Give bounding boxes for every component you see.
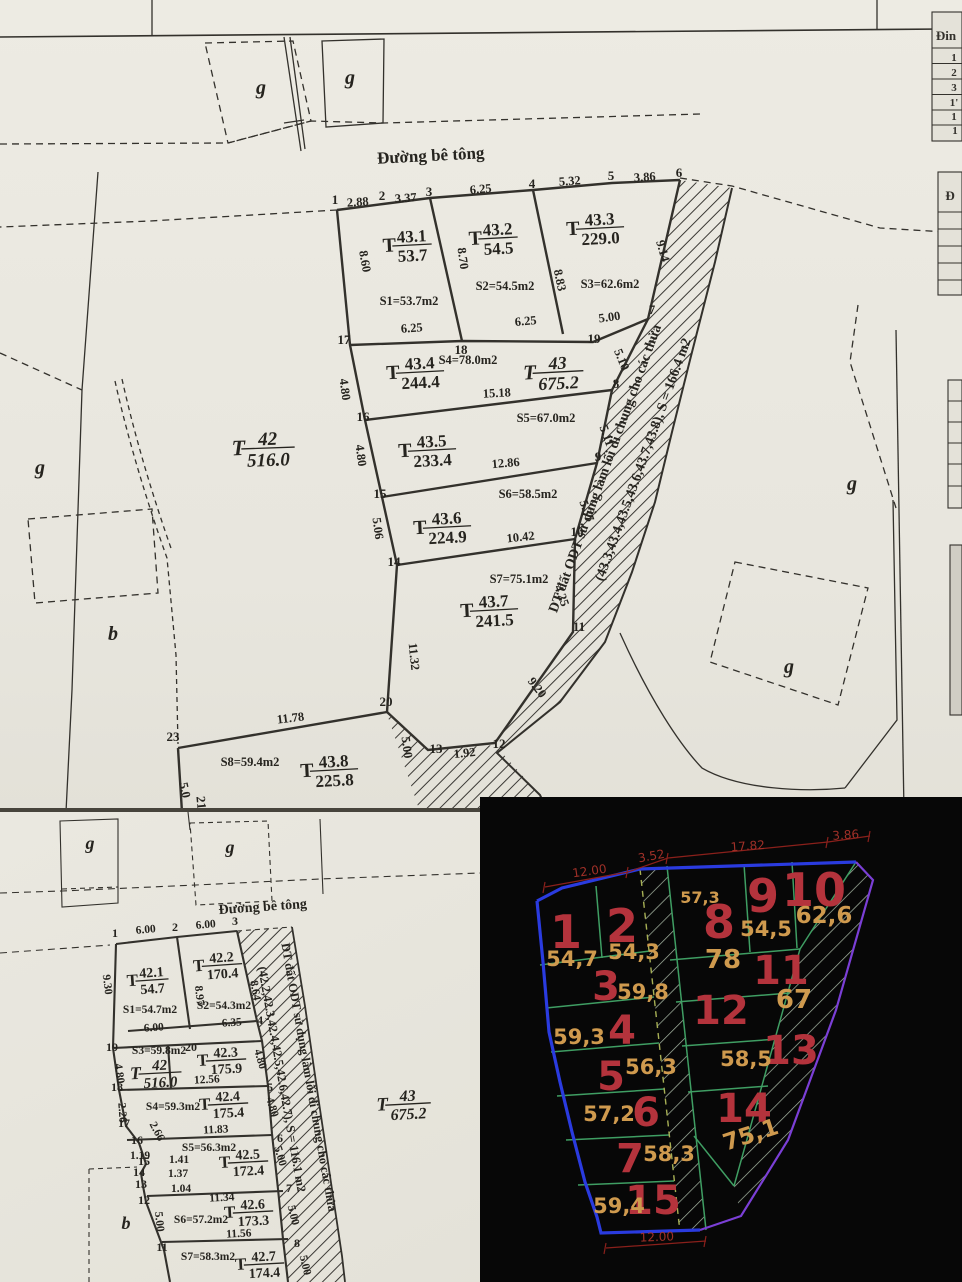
dimension-1.41: 1.41 [169,1154,189,1166]
vertex-14: 14 [388,554,402,569]
svg-text:516.0: 516.0 [247,449,291,471]
svg-text:225.8: 225.8 [315,770,354,791]
svg-text:175.9: 175.9 [210,1061,242,1078]
survey-sheet-top: Đường bê tông DT đất ODT sử dụng làm lối… [0,0,962,812]
cad-parcel-number-9: 9 [747,869,779,923]
cad-parcel-area-59,3: 59,3 [553,1025,605,1049]
vertex-5: 5 [267,1080,273,1094]
svg-text:43.8: 43.8 [318,751,349,772]
svg-text:43.3: 43.3 [584,209,615,230]
dimension-6.00: 6.00 [195,918,216,932]
vertex-1: 1 [112,926,118,940]
svg-text:516.0: 516.0 [143,1074,178,1092]
vertex-17: 17 [338,332,352,347]
vertex-19: 19 [588,331,602,346]
vertex-3: 3 [426,184,433,199]
cad-parcel-number-4: 4 [608,1008,636,1054]
svg-text:675.2: 675.2 [538,372,579,394]
parcel-area-S254.5m2: S2=54.5m2 [476,279,535,293]
vertex-4: 4 [529,176,536,191]
cad-screenshot-inset: 123456715891011121314 54,754,359,859,356… [480,797,962,1282]
svg-text:T: T [126,970,139,990]
svg-text:43.2: 43.2 [482,219,513,240]
edge-table-text-1': 1' [950,97,959,109]
collage-canvas: Đường bê tông DT đất ODT sử dụng làm lối… [0,0,962,1282]
svg-text:43.5: 43.5 [416,431,447,452]
cad-parcel-area-58,5: 58,5 [720,1047,772,1071]
landuse-letter-g: g [846,473,857,495]
cad-dimension-12.00: 12.00 [639,1229,674,1244]
dimension-3.86: 3.86 [633,169,656,184]
svg-text:675.2: 675.2 [390,1105,427,1124]
dimension-6.00: 6.00 [135,923,156,937]
svg-text:T: T [231,435,247,461]
parcel-area-S758.3m2: S7=58.3m2 [181,1251,235,1263]
svg-text:241.5: 241.5 [475,610,514,631]
parcel-area-S154.7m2: S1=54.7m2 [123,1004,177,1016]
svg-text:T: T [523,360,538,385]
parcel-area-S254.3m2: S2=54.3m2 [197,1000,251,1012]
vertex-15: 15 [374,486,388,501]
vertex-12: 12 [493,736,506,751]
svg-text:T: T [129,1063,142,1084]
landuse-letter-b: b [108,623,118,645]
cad-parcel-area-62,6: 62,6 [796,903,853,929]
dimension-12.86: 12.86 [491,455,520,471]
cad-parcel-area-54,7: 54,7 [546,947,598,971]
dimension-10.42: 10.42 [506,529,535,546]
parcel-area-S775.1m2: S7=75.1m2 [490,572,549,586]
landuse-letter-g: g [225,837,235,857]
svg-text:43.6: 43.6 [431,508,462,529]
vertex-13: 13 [430,741,444,756]
cad-parcel-area-54,3: 54,3 [608,940,660,964]
dimension-1.04: 1.04 [171,1183,191,1195]
svg-text:T: T [192,956,205,976]
dimension-5.00: 5.00 [152,1211,166,1233]
svg-text:42.5: 42.5 [235,1147,260,1163]
cad-dimension-3.86: 3.86 [832,827,860,843]
edge-table-text-1: 1 [951,111,957,123]
vertex-7: 7 [286,1181,292,1195]
cad-parcel-area-78: 78 [705,945,741,975]
dimension-6.25: 6.25 [514,313,537,329]
parcel-area-S478.0m2: S4=78.0m2 [439,353,498,367]
edge-table-text-: Đ [945,188,954,203]
parcel-area-S658.5m2: S6=58.5m2 [499,487,558,501]
svg-text:42: 42 [151,1058,168,1075]
svg-text:173.3: 173.3 [237,1213,269,1230]
parcel-area-S359.8m2: S3=59.8m2 [132,1045,186,1057]
landuse-letter-g: g [783,656,794,678]
dimension-3.37: 3.37 [394,190,417,205]
parcel-area-S362.6m2: S3=62.6m2 [581,277,640,291]
landuse-letter-g: g [85,833,95,853]
vertex-11: 11 [156,1240,167,1254]
svg-text:T: T [199,1094,212,1114]
vertex-4: 4 [257,1013,263,1027]
dimension-2.88: 2.88 [346,194,369,209]
svg-text:54.7: 54.7 [140,981,165,998]
svg-text:233.4: 233.4 [413,450,453,471]
dimension-9.30: 9.30 [100,974,114,996]
cad-parcel-area-56,3: 56,3 [625,1055,677,1079]
vertex-23: 23 [167,729,181,744]
dimension-6.25: 6.25 [469,181,492,197]
cad-parcel-area-57,2: 57,2 [583,1102,635,1126]
svg-text:T: T [224,1202,237,1222]
svg-text:42.1: 42.1 [139,965,164,982]
vertex-21: 21 [193,795,209,809]
svg-text:42.3: 42.3 [213,1045,238,1061]
svg-text:244.4: 244.4 [401,372,441,393]
svg-text:170.4: 170.4 [206,966,238,983]
edge-table-text-in: Đin [936,28,957,43]
dimension-15.18: 15.18 [482,385,511,400]
svg-text:T: T [235,1254,248,1274]
dimension-11.83: 11.83 [203,1123,229,1136]
vertex-7: 7 [649,302,656,317]
edge-table-text-3: 3 [951,82,957,94]
cadastral-map-photo-collage: Đường bê tông DT đất ODT sử dụng làm lối… [0,0,962,1282]
cad-parcel-number-7: 7 [616,1136,644,1182]
cad-parcel-number-5: 5 [597,1054,625,1100]
vertex-5: 5 [608,168,615,183]
landuse-letter-g: g [344,67,355,89]
svg-text:175.4: 175.4 [212,1105,244,1122]
landuse-letter-b: b [122,1213,131,1233]
vertex-9: 9 [595,449,602,464]
dimension-5.32: 5.32 [558,173,581,188]
vertex-3: 3 [232,914,238,928]
dimension-1.19: 1.19 [130,1150,150,1162]
parcel-area-S153.7m2: S1=53.7m2 [380,294,439,308]
edge-table-text-1: 1 [951,52,957,64]
cad-parcel-area-57,3: 57,3 [680,888,719,907]
dimension-6.00: 6.00 [143,1021,164,1034]
cad-parcel-area-59,8: 59,8 [617,980,669,1004]
parcel-area-S859.4m2: S8=59.4m2 [221,755,280,769]
svg-text:224.9: 224.9 [428,527,467,548]
vertex-8: 8 [294,1236,300,1250]
svg-text:172.4: 172.4 [232,1163,264,1180]
vertex-6: 6 [676,165,683,180]
vertex-20: 20 [380,694,393,709]
dimension-1.92: 1.92 [453,745,476,761]
vertex-10: 10 [571,524,584,539]
svg-text:42.7: 42.7 [251,1249,276,1265]
vertex-16: 16 [131,1133,143,1147]
cad-parcel-number-12: 12 [693,988,749,1034]
cad-dimension-17.82: 17.82 [730,838,765,854]
svg-text:42: 42 [257,429,278,451]
landuse-letter-g: g [34,457,45,479]
cad-parcel-area-59,4: 59,4 [593,1194,645,1218]
dimension-11.32: 11.32 [406,642,423,671]
vertex-13: 13 [135,1177,147,1191]
svg-text:43: 43 [398,1088,416,1106]
parcel-area-S459.3m2: S4=59.3m2 [146,1101,200,1113]
svg-text:54.5: 54.5 [483,238,514,259]
svg-text:43.1: 43.1 [396,226,427,247]
dimension-6.35: 6.35 [221,1016,242,1029]
parcel-area-S567.0m2: S5=67.0m2 [517,411,576,425]
edge-table-text-1: 1 [952,125,958,137]
svg-text:42.4: 42.4 [215,1089,240,1105]
svg-text:43.4: 43.4 [404,353,435,374]
svg-text:174.4: 174.4 [248,1265,280,1282]
vertex-8: 8 [613,376,620,391]
vertex-12: 12 [138,1193,150,1207]
svg-text:229.0: 229.0 [581,228,620,249]
vertex-20: 20 [185,1040,197,1054]
vertex-2: 2 [379,188,386,203]
landuse-letter-g: g [255,77,266,99]
svg-text:42.6: 42.6 [240,1197,265,1213]
dimension-6.25: 6.25 [400,320,423,335]
cad-parcel-area-58,3: 58,3 [643,1142,695,1166]
cad-parcel-number-6: 6 [632,1090,660,1136]
vertex-19: 19 [106,1040,118,1054]
vertex-2: 2 [172,920,178,934]
svg-text:43.7: 43.7 [478,591,509,612]
svg-text:T: T [219,1152,232,1172]
vertex-16: 16 [357,409,371,424]
edge-table-text-2: 2 [951,67,957,79]
svg-text:42.2: 42.2 [209,950,234,967]
parcel-area-S657.2m2: S6=57.2m2 [174,1214,228,1226]
vertex-1: 1 [332,192,339,207]
vertex-11: 11 [573,619,585,634]
dimension-2.26: 2.26 [115,1102,128,1123]
cad-parcel-area-54,5: 54,5 [740,917,792,941]
svg-text:43: 43 [547,353,567,374]
svg-text:53.7: 53.7 [397,245,428,266]
svg-text:T: T [197,1050,210,1070]
cad-parcel-area-67: 67 [776,985,812,1015]
vertex-6: 6 [277,1131,283,1145]
dimension-1.37: 1.37 [168,1168,188,1180]
